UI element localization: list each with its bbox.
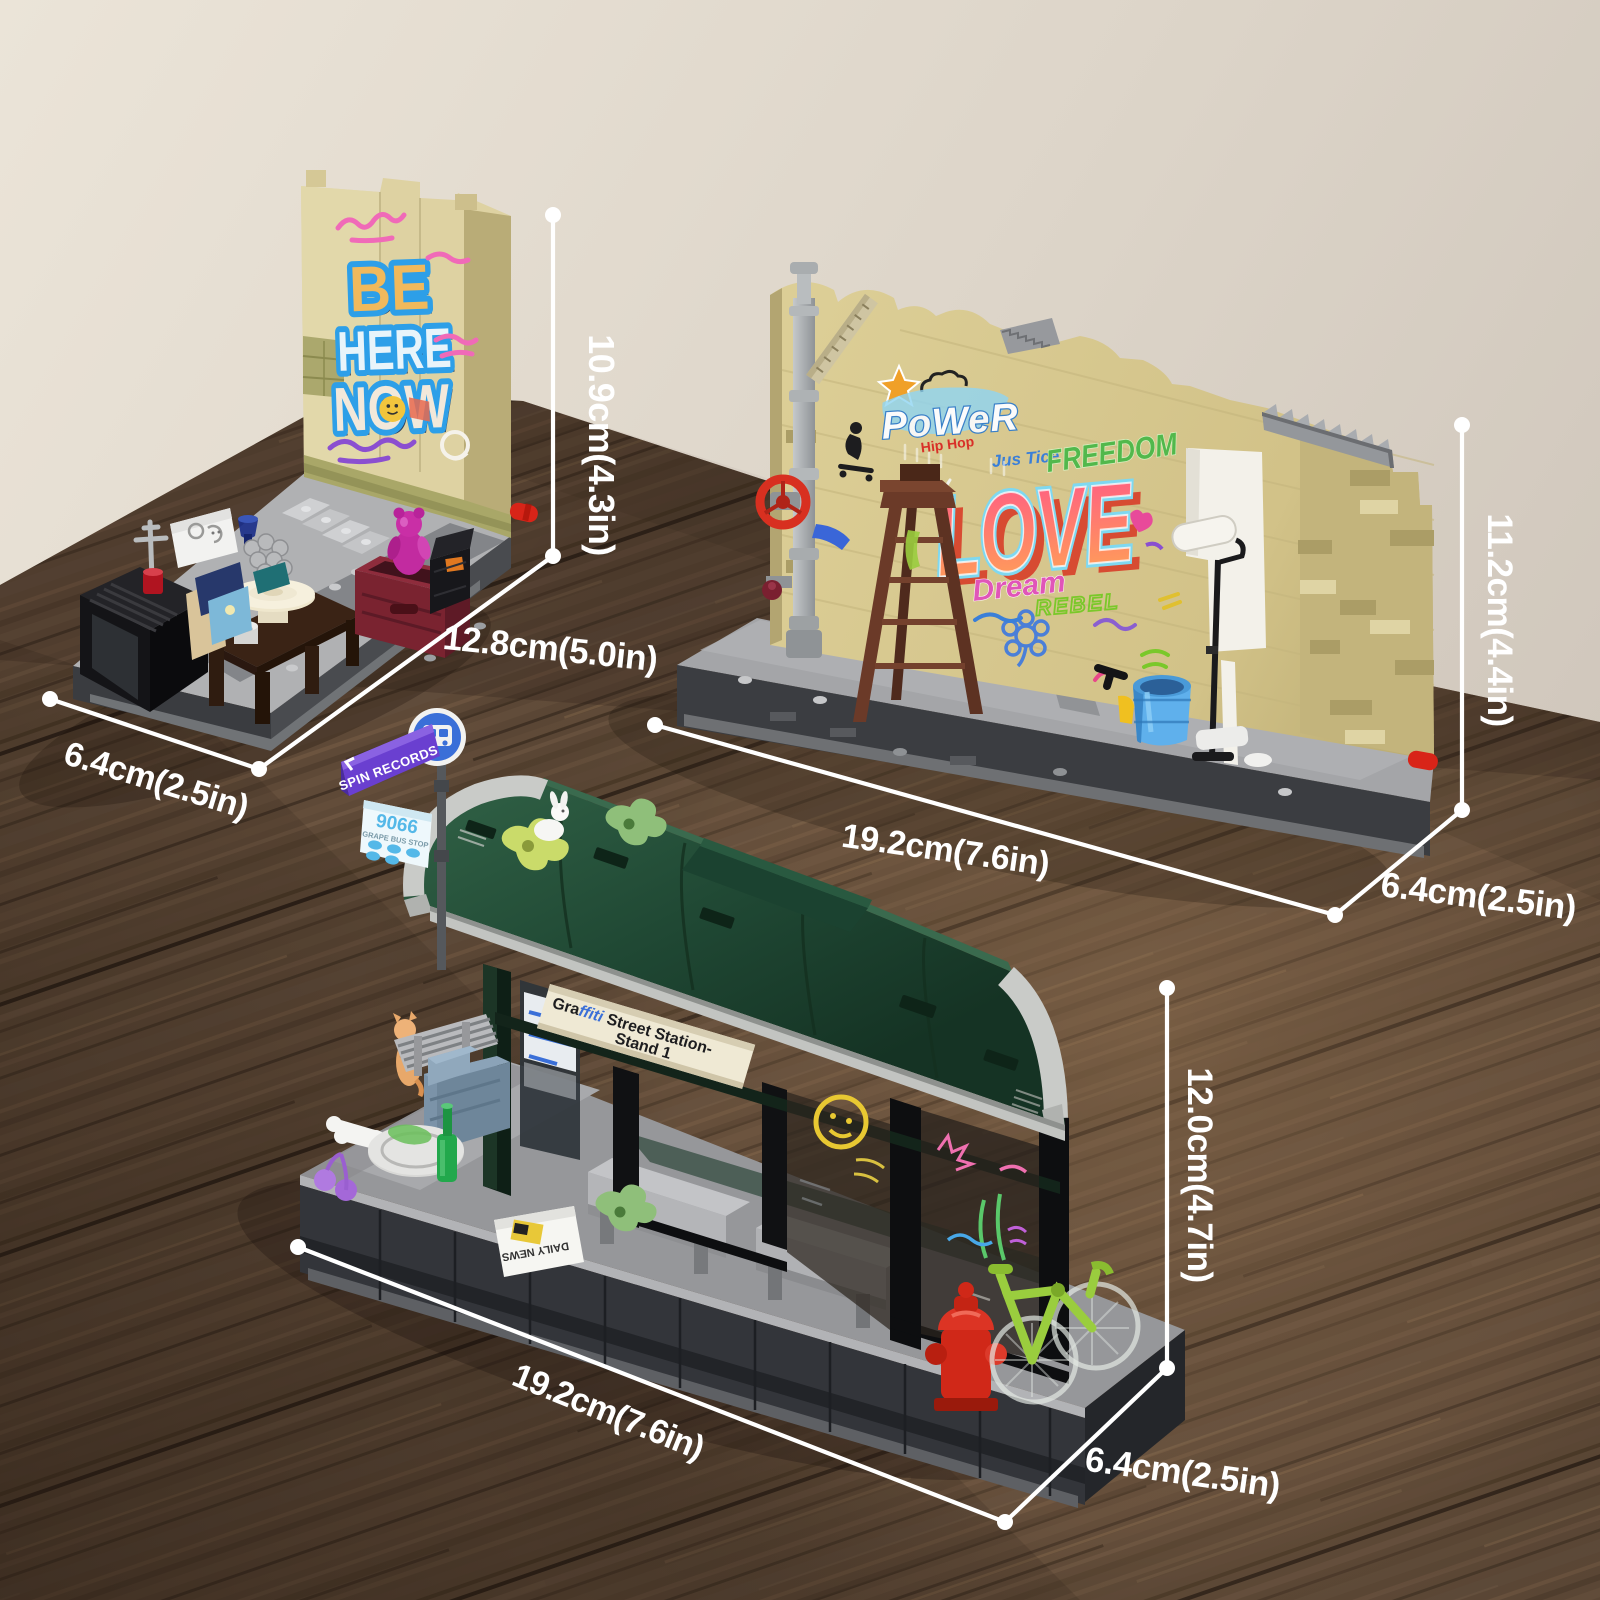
svg-text:BE: BE (348, 251, 430, 326)
svg-text:11.2cm(4.4in): 11.2cm(4.4in) (1480, 513, 1519, 726)
svg-text:12.0cm(4.7in): 12.0cm(4.7in) (1180, 1067, 1219, 1282)
svg-text:10.9cm(4.3in): 10.9cm(4.3in) (581, 334, 622, 556)
